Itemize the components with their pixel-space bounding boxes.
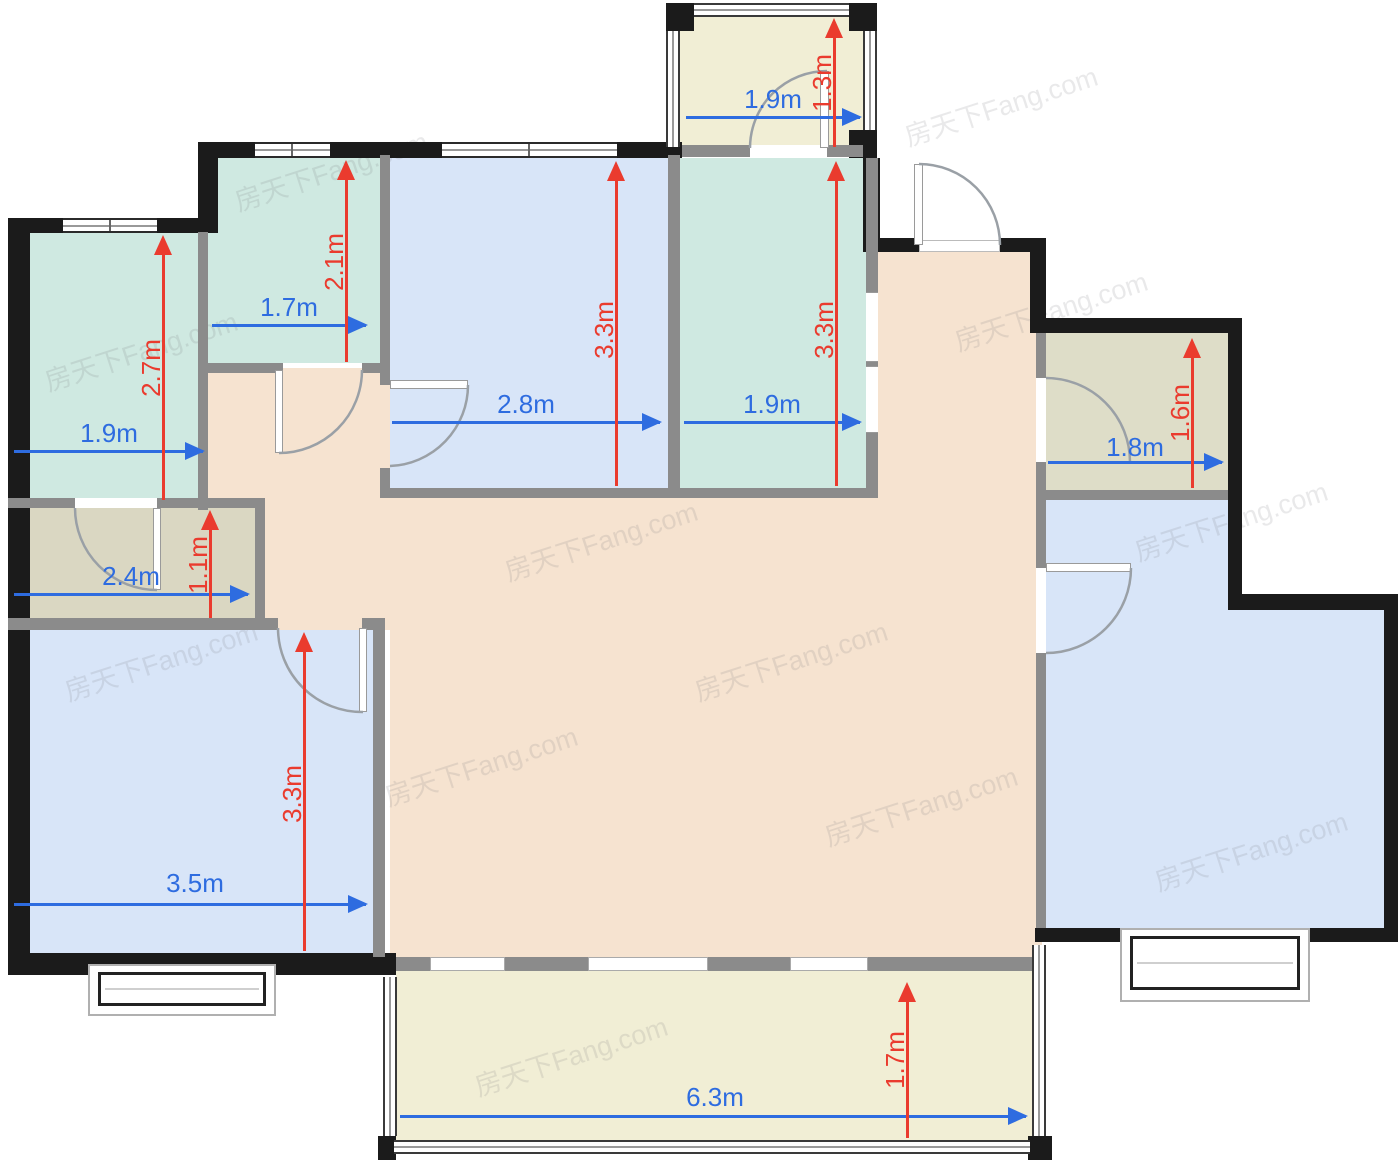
wall-room-tr-bottom	[668, 488, 878, 498]
wall-bath-right-west	[1036, 333, 1046, 378]
dim-label: 2.4m	[86, 561, 176, 592]
wall-balcony-corner	[666, 3, 694, 31]
door-arc	[919, 164, 1000, 245]
dim-label: 1.3m	[807, 38, 835, 128]
dim-label: 1.1m	[183, 520, 211, 610]
bay-window	[1130, 936, 1300, 990]
dim-label: 3.5m	[150, 868, 240, 899]
dim-label: 1.6m	[1165, 368, 1193, 458]
dim-label: 1.9m	[728, 84, 818, 115]
wall-balcony-bottom-inner	[708, 957, 790, 971]
dim-arrow	[185, 442, 205, 460]
wall-bath-right-bottom	[1046, 490, 1228, 500]
watermark: 房天下Fang.com	[899, 55, 1102, 154]
balcony-window-wall	[666, 31, 680, 147]
dim-arrow	[898, 982, 916, 1002]
dim-label: 2.1m	[319, 217, 347, 307]
living-dining	[390, 498, 1042, 962]
living-dining	[866, 252, 1042, 502]
dim-line	[212, 324, 366, 327]
bedroom-right	[1228, 610, 1386, 930]
sliding-door	[866, 292, 878, 362]
dim-label: 1.9m	[64, 418, 154, 449]
dim-arrow	[1204, 453, 1224, 471]
wall-bath-left-top	[8, 498, 75, 508]
dim-arrow	[825, 18, 843, 38]
wall-bath-left-east	[255, 498, 265, 628]
dim-arrow	[842, 413, 862, 431]
window	[442, 142, 617, 158]
door-leaf	[1046, 563, 1131, 572]
door-leaf	[275, 370, 283, 453]
wall-balcony-top-inner	[682, 145, 750, 157]
dim-line	[400, 1115, 1026, 1118]
dim-line	[14, 450, 203, 453]
door-opening	[1036, 378, 1046, 462]
wall-bedroom-tm-bottom	[380, 488, 678, 498]
dim-arrow	[1008, 1107, 1028, 1125]
wall-balcony-bottom-inner	[396, 957, 430, 971]
wall-room-tr-west	[668, 155, 680, 498]
door-leaf	[914, 164, 923, 245]
dim-label: 3.3m	[809, 285, 837, 375]
sliding-door	[866, 366, 878, 433]
dim-label: 2.7m	[136, 323, 164, 413]
dim-arrow	[607, 161, 625, 181]
window	[63, 218, 157, 233]
room-top-left	[30, 233, 198, 498]
entry-threshold	[919, 240, 1000, 252]
dim-label: 3.3m	[277, 749, 305, 839]
dim-arrow	[827, 161, 845, 181]
wall-balcony-corner	[849, 3, 877, 31]
floor-plan: 房天下Fang.com 房天下Fang.com 房天下Fang.com 房天下F…	[0, 0, 1400, 1163]
wall-room-tr-east	[866, 433, 878, 498]
wall-step-right	[1228, 594, 1398, 610]
dim-arrow	[842, 108, 862, 126]
wall-bedroom-tm-west	[380, 155, 390, 385]
wall-bedroom-r-west	[1036, 653, 1046, 928]
dim-line	[392, 421, 660, 424]
window	[255, 142, 330, 158]
balcony-window-wall	[1032, 945, 1046, 1136]
wall-room-tr-east	[866, 158, 878, 292]
wall-bath-right-west	[1036, 462, 1046, 500]
sliding-door	[790, 957, 868, 971]
wall-step-top-left	[198, 145, 218, 233]
dim-arrow	[295, 632, 313, 652]
dim-label: 6.3m	[670, 1082, 760, 1113]
dim-label: 1.7m	[880, 1015, 908, 1105]
door-leaf	[359, 628, 367, 712]
dim-arrow	[642, 413, 662, 431]
door-opening	[1036, 568, 1046, 653]
wall-bedroom-bl-top	[8, 618, 278, 630]
dim-line	[14, 903, 366, 906]
wall-bath-left-top	[157, 498, 262, 508]
dim-arrow	[348, 895, 368, 913]
dim-arrow	[337, 160, 355, 180]
wall-balcony-bottom-corner	[1028, 1136, 1052, 1160]
sliding-door	[588, 957, 708, 971]
dim-line	[684, 421, 860, 424]
balcony-window-wall	[394, 1140, 1030, 1154]
wall-balcony-bottom-inner	[505, 957, 588, 971]
dim-arrow	[154, 235, 172, 255]
balcony-window-wall	[383, 977, 397, 1136]
bedroom-top-middle	[390, 158, 668, 488]
wall-bath-right-east	[1228, 318, 1242, 608]
balcony-window-wall	[863, 31, 877, 130]
wall-right	[1384, 594, 1398, 942]
wall-kitchen-bottom	[205, 363, 283, 373]
sliding-door	[430, 957, 505, 971]
wall-balcony-bottom-inner	[868, 957, 1046, 971]
door-leaf	[390, 380, 468, 389]
wall-bath-right-top	[1030, 318, 1242, 333]
dim-label: 2.8m	[481, 389, 571, 420]
wall-left	[8, 218, 30, 975]
dim-label: 1.9m	[727, 389, 817, 420]
wall-bedroom-r-west	[1036, 500, 1046, 568]
wall-bedroom-bl-east	[373, 628, 385, 957]
living-dining	[265, 498, 390, 630]
balcony-window-wall	[694, 3, 849, 17]
dim-arrow	[1183, 338, 1201, 358]
dim-arrow	[348, 316, 368, 334]
dim-label: 3.3m	[589, 285, 617, 375]
dim-arrow	[230, 585, 250, 603]
living-dining	[208, 368, 390, 508]
bay-window	[98, 972, 266, 1006]
